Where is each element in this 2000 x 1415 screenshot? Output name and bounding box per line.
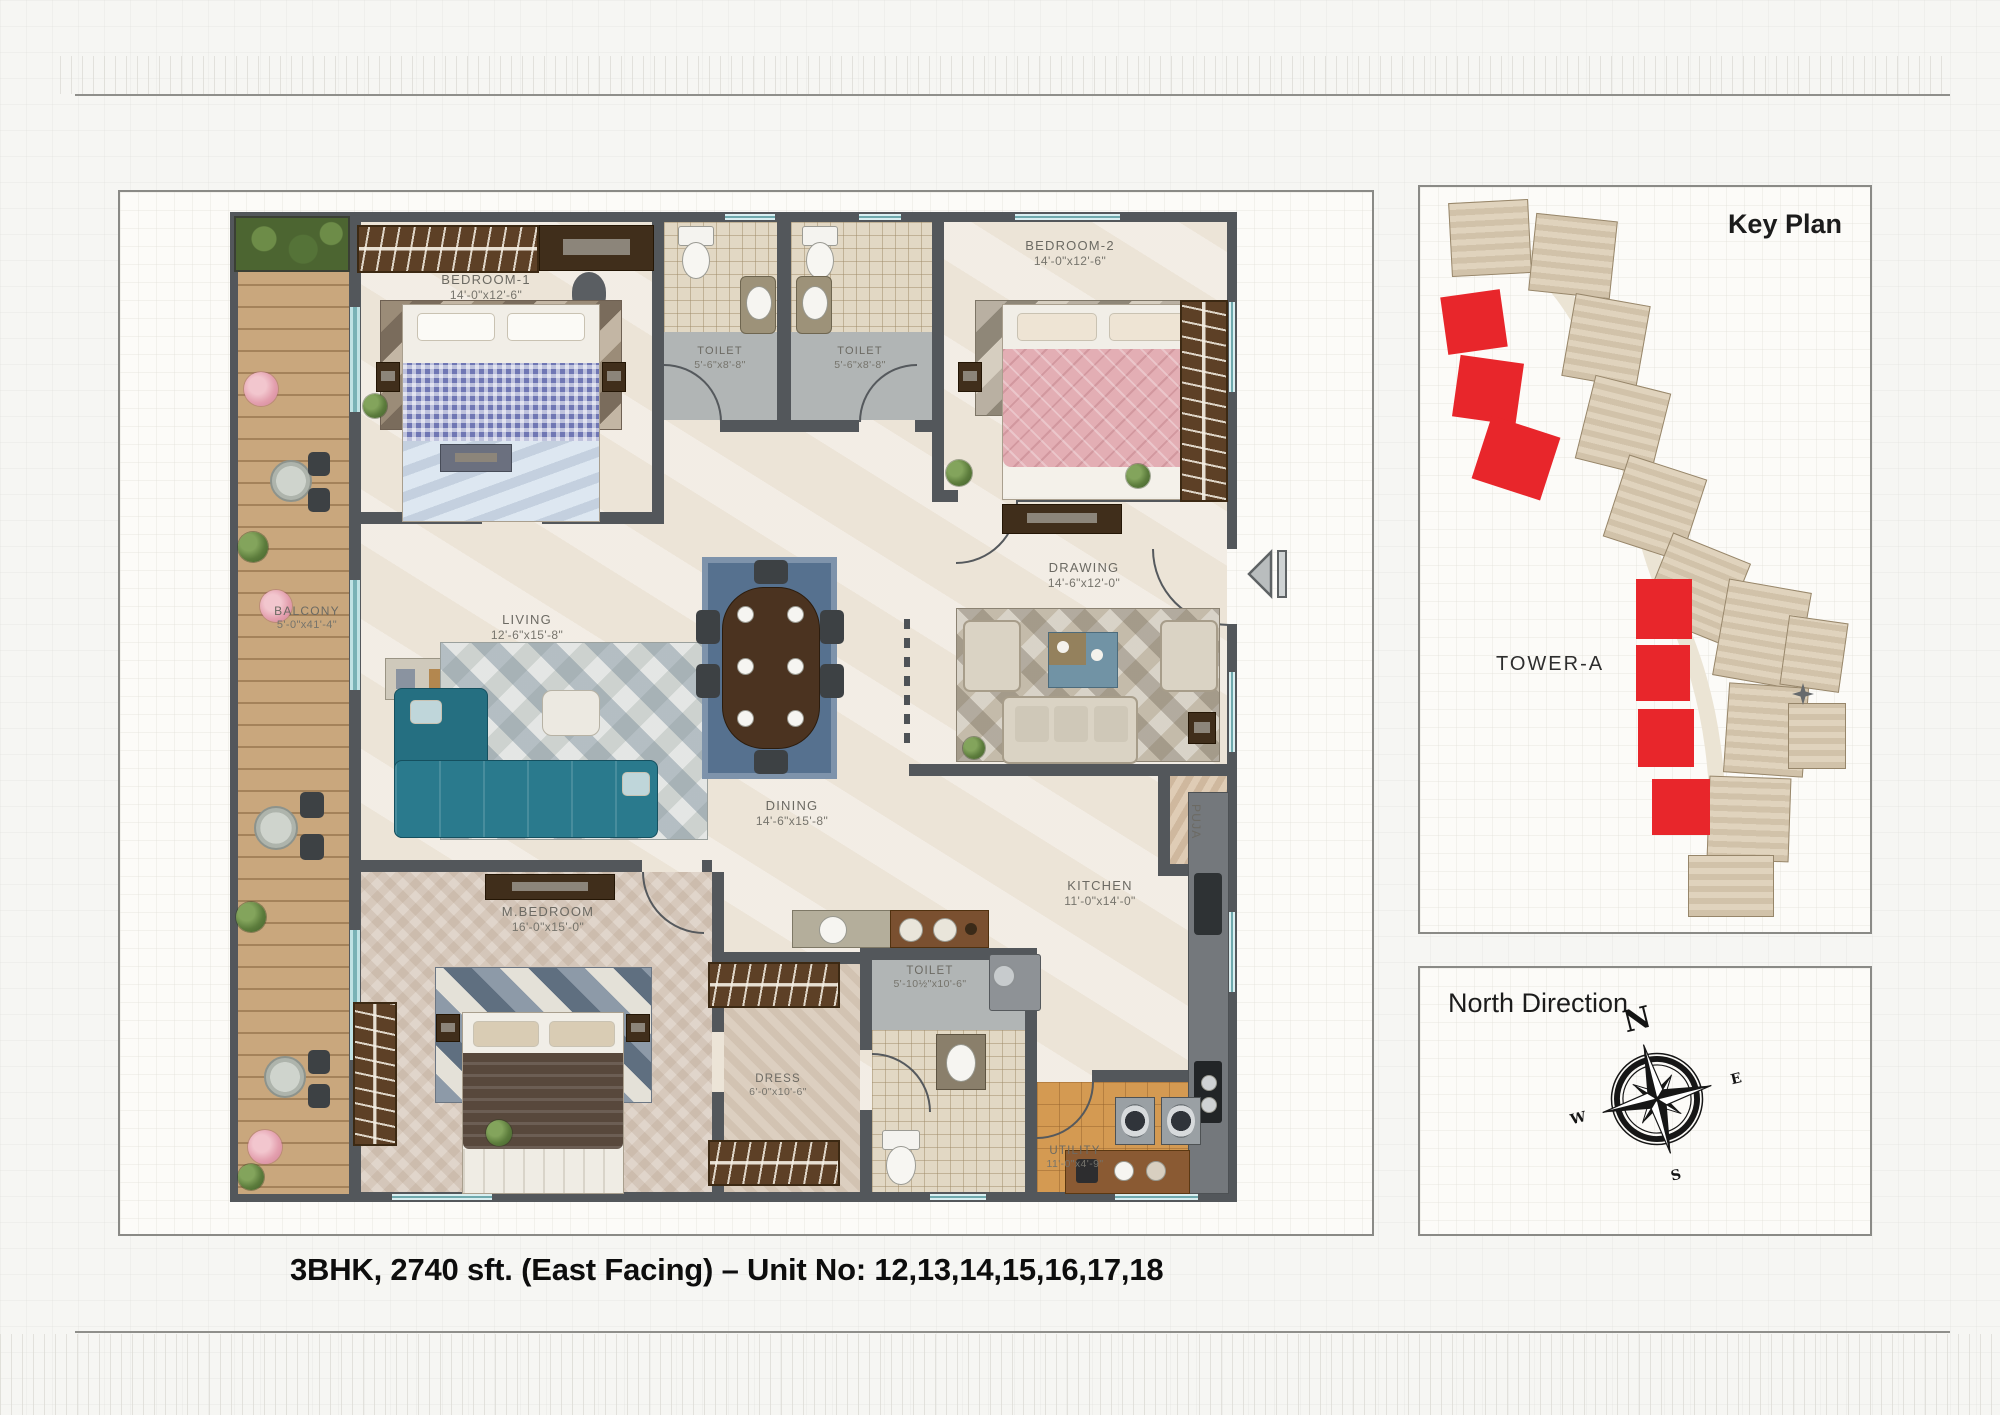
master-nightstand-left: [436, 1014, 460, 1042]
room-label-toilet3: TOILET5'-10½"x10'-6": [893, 964, 966, 992]
master-wardrobe: [353, 1002, 397, 1146]
drawing-side-table: [1188, 712, 1216, 744]
bottom-tick-band: [0, 1334, 2000, 1415]
room-label-dining: DINING14'-6"x15'-8": [756, 798, 828, 829]
tower-label: TOWER-A: [1496, 653, 1604, 676]
compass-n-label: N: [1620, 1000, 1655, 1041]
master-bed: [462, 1012, 624, 1194]
compass-w-label: W: [1569, 1109, 1588, 1128]
room-label-drawing: DRAWING14'-6"x12'-0": [1048, 560, 1120, 591]
drawing-armchair-left: [963, 620, 1021, 692]
balcony-floor: [238, 220, 349, 1194]
key-plan-compass-icon: [1792, 683, 1814, 705]
room-label-bedroom1: BEDROOM-114'-0"x12'-6": [441, 272, 531, 303]
bedroom2-bed: [1002, 304, 1204, 500]
drawing-coffee-table: [1048, 632, 1118, 688]
kitchen-counter-hob: [890, 910, 989, 948]
room-label-bedroom2: BEDROOM-214'-0"x12'-6": [1025, 238, 1115, 269]
drawing-tv-console: [1002, 504, 1122, 534]
compass-s-label: S: [1669, 1167, 1683, 1185]
bedroom2-nightstand: [958, 362, 982, 392]
washing-machine-1: [1115, 1097, 1155, 1145]
room-label-toilet2: TOILET5'-6"x8'-8": [834, 345, 885, 372]
bedroom1-desk: [539, 225, 654, 271]
room-label-dress: DRESS6'-0"x10'-6": [749, 1072, 807, 1100]
drawing-sofa: [1002, 696, 1138, 764]
room-label-kitchen: KITCHEN11'-0"x14'-0": [1064, 878, 1135, 909]
shower-icon: [992, 964, 1016, 988]
compass-star-icon: [1578, 1020, 1736, 1178]
floor-plan-panel: BEDROOM-114'-0"x12'-6" TOILET5'-6"x8'-8"…: [118, 190, 1374, 1236]
living-sofa: [394, 760, 658, 838]
room-label-mbedroom: M.BEDROOM16'-0"x15'-0": [502, 904, 594, 935]
bedroom1-bench: [440, 444, 512, 472]
kitchen-counter-sink: [792, 910, 892, 948]
bedroom1-wardrobe: [357, 225, 539, 273]
bedroom1-bed: [402, 304, 600, 522]
dining-table: [722, 587, 820, 749]
page: BEDROOM-114'-0"x12'-6" TOILET5'-6"x8'-8"…: [0, 0, 2000, 1415]
master-nightstand-right: [626, 1014, 650, 1042]
master-tv-console: [485, 874, 615, 900]
living-coffee-table: [542, 690, 600, 736]
bottom-rule: [75, 1331, 1950, 1333]
dress-wardrobe-bottom: [708, 1140, 840, 1186]
key-plan-panel: Key Plan TOWER-A: [1418, 185, 1872, 934]
dining-drawing-partition: [904, 619, 910, 749]
drawing-armchair-right: [1160, 620, 1218, 692]
compass-e-label: E: [1729, 1070, 1743, 1088]
dress-wardrobe-top: [708, 962, 840, 1008]
bedroom1-nightstand-left: [376, 362, 400, 392]
north-direction-panel: North Direction: [1418, 966, 1872, 1236]
north-direction-title: North Direction: [1448, 988, 1628, 1019]
room-label-puja: PUJA: [1188, 792, 1203, 852]
room-label-living: LIVING12'-6"x15'-8": [491, 612, 563, 643]
room-label-utility: UTILITY11'-0"x4'-9": [1047, 1144, 1104, 1172]
bedroom1-nightstand-right: [602, 362, 626, 392]
room-label-balcony: BALCONY5'-0"x41'-4": [274, 604, 340, 633]
washing-machine-2: [1161, 1097, 1201, 1145]
floor-plan: BEDROOM-114'-0"x12'-6" TOILET5'-6"x8'-8"…: [230, 212, 1240, 1202]
planter-box: [234, 216, 350, 272]
entry-arrow-icon: [1244, 547, 1292, 601]
bedroom2-wardrobe: [1180, 300, 1228, 502]
top-rule: [75, 94, 1950, 96]
caption: 3BHK, 2740 sft. (East Facing) – Unit No:…: [290, 1252, 1163, 1288]
room-label-toilet1: TOILET5'-6"x8'-8": [694, 345, 745, 372]
top-tick-band: [60, 56, 1950, 94]
compass-rose: N E S W: [1578, 1020, 1736, 1178]
